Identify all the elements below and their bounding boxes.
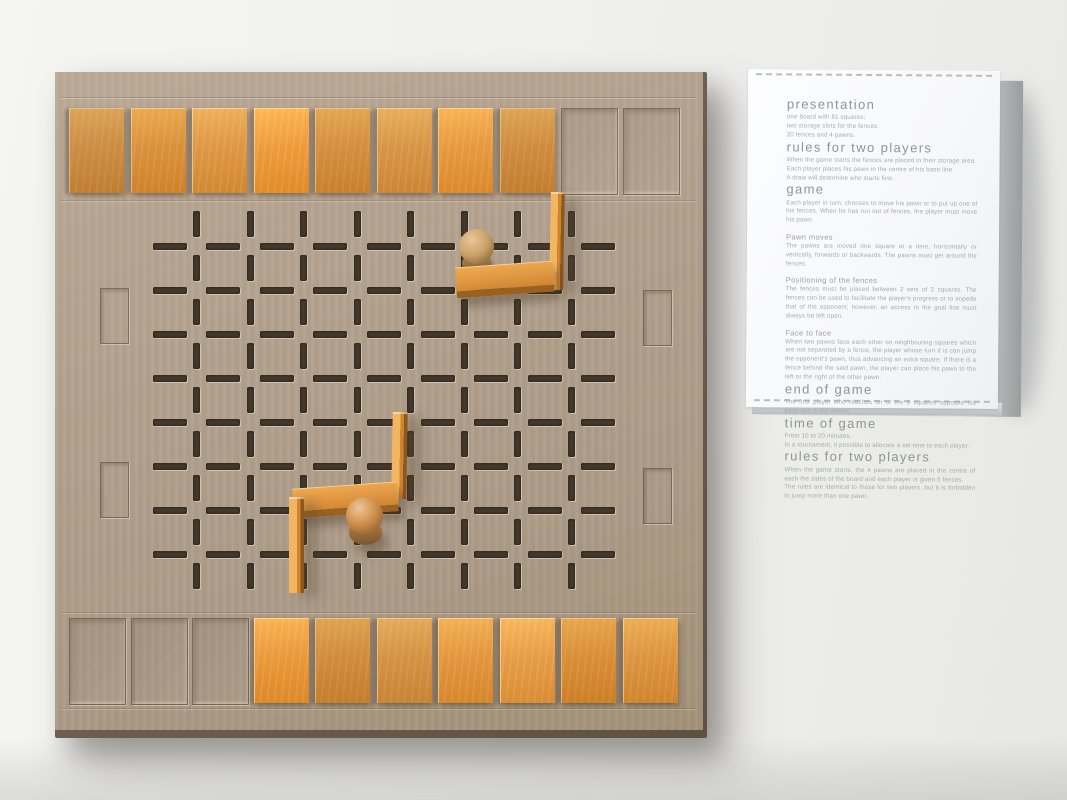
rules-section: end of gameThe first player who reaches …: [785, 382, 976, 417]
photo-stage: presentationone board with 81 squares;tw…: [0, 0, 1067, 800]
rules-section-title: end of game: [785, 382, 976, 398]
rules-section-title: Positioning of the fences: [786, 276, 977, 286]
rules-section-title: presentation: [787, 97, 978, 113]
rules-sheet: presentationone board with 81 squares;tw…: [746, 69, 1000, 409]
rules-section: rules for two playersWhen the game start…: [784, 450, 975, 503]
rules-paragraph: The first player who reaches on of the 9…: [785, 398, 976, 417]
pawn-ball: [346, 497, 383, 534]
rules-section: time of gameFrom 10 to 20 minutes.In a t…: [785, 416, 976, 451]
rules-paragraph: When two pawns face each other on neighb…: [785, 338, 976, 383]
rules-section-title: Face to face: [785, 328, 976, 338]
flat-fence: [455, 261, 555, 299]
rules-section: Face to faceWhen two pawns face each oth…: [785, 328, 976, 383]
rules-section: Positioning of the fencesThe fences must…: [785, 276, 976, 323]
rules-text: presentationone board with 81 squares;tw…: [784, 97, 978, 502]
rules-section: Pawn movesThe pawns are moved one square…: [786, 232, 977, 270]
pawn-ball: [459, 229, 494, 264]
rules-section-title: Pawn moves: [786, 232, 977, 242]
rules-paragraph: Each player in turn, chooses to move his…: [786, 199, 977, 227]
rules-section-title: game: [786, 183, 977, 199]
rules-paragraph: When the game starts, the 4 pawns are pl…: [784, 466, 975, 485]
rules-section-title: time of game: [785, 416, 976, 432]
rules-section: rules for two playersWhen the game start…: [786, 140, 977, 184]
rules-section-title: rules for two players: [787, 140, 978, 156]
rules-paragraph: The pawns are moved one square at a time…: [786, 242, 977, 270]
standing-fence: [289, 497, 304, 593]
rules-section: gameEach player in turn, chooses to move…: [786, 183, 977, 227]
rules-section-title: rules for two players: [784, 450, 975, 466]
rules-section: presentationone board with 81 squares;tw…: [787, 97, 978, 141]
rules-paragraph: The rules are identical to those for two…: [784, 484, 975, 503]
perforation-line: [756, 73, 992, 77]
rules-paragraph: The fences must be placed between 2 sets…: [785, 286, 976, 323]
